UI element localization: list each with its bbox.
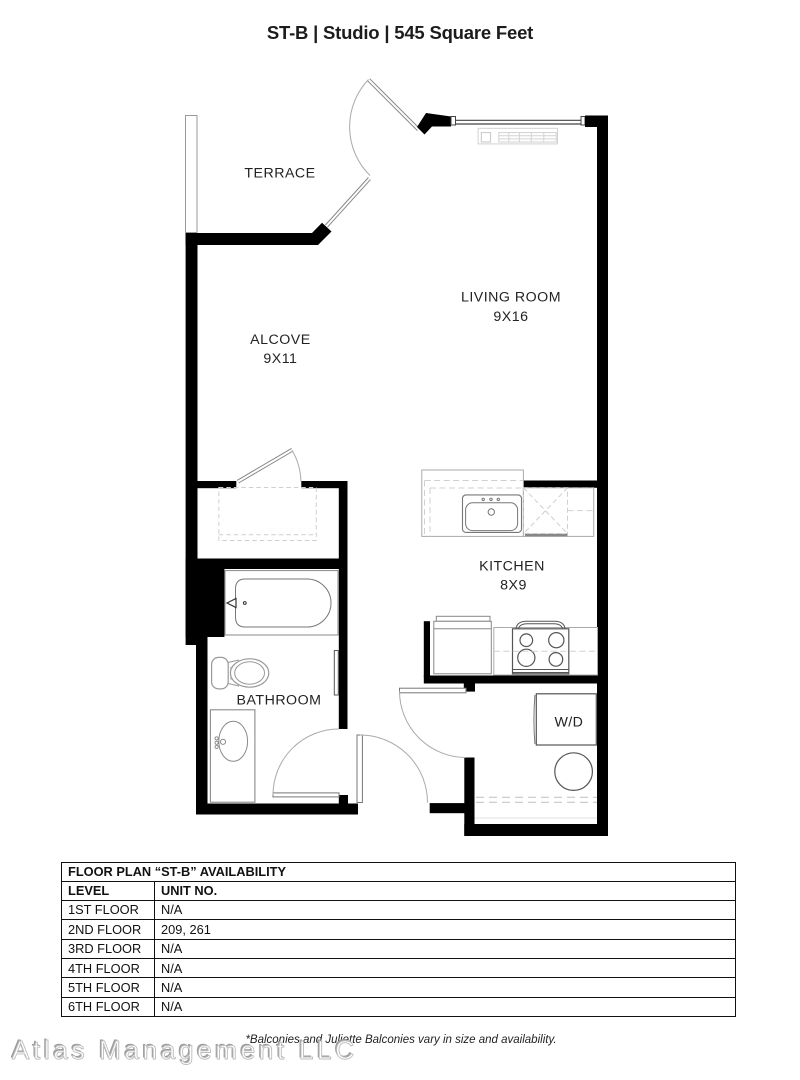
svg-text:9X16: 9X16 [493,309,528,325]
svg-text:KITCHEN: KITCHEN [479,559,545,575]
svg-text:W/D: W/D [555,714,584,730]
svg-text:BATHROOM: BATHROOM [237,692,322,708]
svg-text:LIVING ROOM: LIVING ROOM [461,290,561,306]
svg-text:9X11: 9X11 [263,351,297,367]
svg-text:TERRACE: TERRACE [244,165,315,181]
svg-text:8X9: 8X9 [500,578,527,594]
svg-text:ALCOVE: ALCOVE [250,332,311,348]
